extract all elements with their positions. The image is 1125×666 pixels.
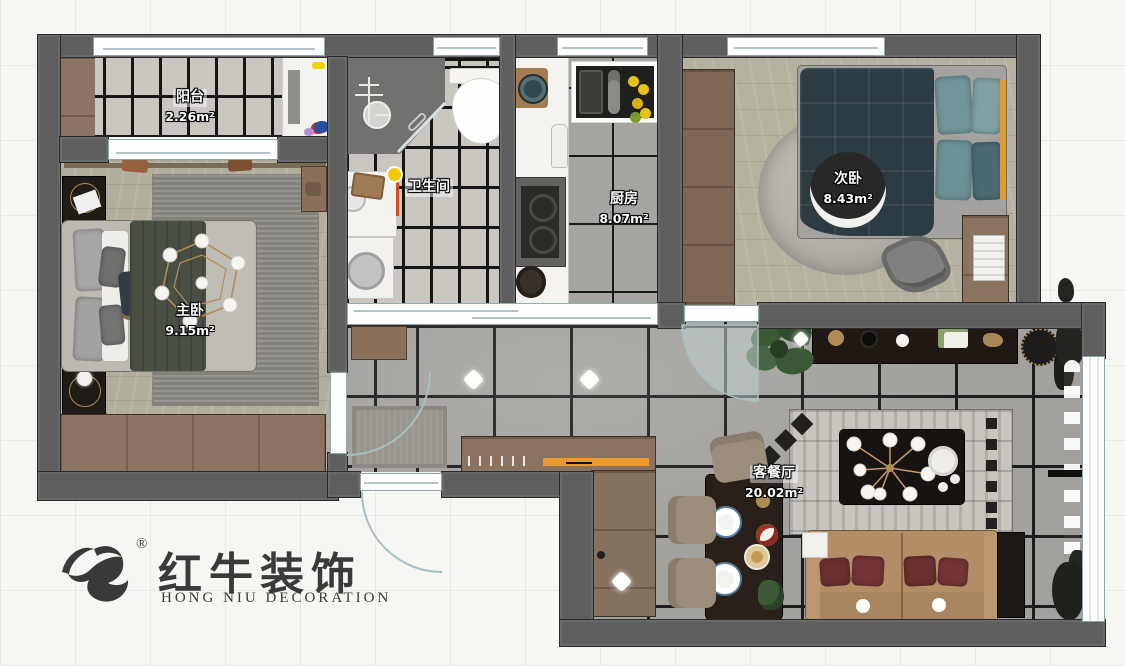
master-door-arc [345,370,435,460]
sofa-pillow [851,555,885,587]
balcony-shelf [283,57,330,137]
vegetables [628,76,639,87]
wall-bedroom2-right [1017,35,1040,305]
outdoor-figurine [1058,278,1074,302]
desk-chair [305,182,321,196]
bedroom2-door-leaf [684,305,759,322]
wall-bedroom2-bottom-right [758,303,1105,328]
brand-name-en: HONG NIU DECORATION [161,590,391,607]
table-tray [928,446,958,476]
hanging-clothes [228,158,253,172]
room-name: 卫生间 [405,179,453,197]
sofa-pillow [937,557,969,587]
wall-balcony-stub-right [278,137,330,162]
pillow [971,141,1003,200]
wall-left [38,35,60,500]
registered-mark: ® [136,536,147,553]
sofa-pillow [903,555,937,587]
hanging-clothes [121,158,148,173]
wall-living-bottom [560,620,1105,646]
orange-accent-strip [543,458,649,466]
desk-books [974,236,1004,280]
shower-icon [345,57,445,154]
window-balcony [93,37,325,56]
window-bedroom2 [727,37,885,56]
blue-shoe [314,121,329,133]
floor-plan-render: 阳台 2.26m² 卫生间 厨房 8.07m² 主卧 9.15m² 次卧 8.4… [0,0,1125,666]
window-balcony-bedroom [108,139,278,160]
clothes-rail [64,163,326,168]
logo-bull-icon [58,542,138,614]
wall-bath-kitchen [500,35,515,305]
balcony-side-cabinet [60,57,95,137]
window-kitchen [557,37,648,56]
room-label-second-bedroom: 次卧 8.43m² [806,168,890,206]
leaf-garland [1064,360,1080,565]
room-name: 客餐厅 [750,465,798,483]
nightstand [62,366,106,416]
shoe-cabinet-top [462,437,655,471]
dining-chair [668,558,716,608]
room-label-kitchen: 厨房 8.07m² [582,188,666,226]
nightstand [62,176,106,224]
pillow [971,77,1004,134]
headboard-led-strip [1000,80,1006,200]
room-label-bathroom: 卫生间 [394,176,464,197]
table-plant [758,580,784,610]
sputnik-chandelier-icon [846,434,934,502]
room-name: 次卧 [834,171,862,189]
fruit-plate [756,524,778,546]
cutting-board [551,124,568,168]
wall-master-bottom [38,472,338,500]
hall-bench [352,327,406,359]
wall-living-right-top [1082,303,1105,358]
wall-entry-left [328,472,360,497]
master-dresser [60,415,325,472]
sink-basin [579,70,603,114]
side-cabinet [998,533,1024,617]
wall-master-right-upper [328,57,347,372]
sliding-door-kitchen [347,303,658,325]
wall-kitchen-bedroom2 [658,35,682,328]
shelf-panel [288,70,300,124]
kitchen-sink-counter [572,62,658,122]
stove [515,178,565,266]
wall-balcony-stub-left [60,137,108,162]
window-living-right [1082,356,1105,622]
dining-chair [668,496,716,544]
fish-on-board [608,70,620,114]
wardrobe [682,70,734,307]
cooking-pot [518,74,548,104]
room-name: 厨房 [610,191,638,209]
room-name: 主卧 [176,303,204,321]
room-label-living-dining: 客餐厅 20.02m² [728,462,820,500]
brand-logo: ® 红牛装饰 HONG NIU DECORATION [58,538,418,622]
pillow [935,139,973,200]
tv-bar [1048,470,1082,477]
room-label-master-bedroom: 主卧 9.15m² [148,300,232,338]
decor-plant-dark [1052,562,1084,620]
cup [938,482,948,492]
window-bathroom [433,37,500,56]
sofa [806,531,998,621]
purple-item [304,128,314,136]
pillow [934,75,974,135]
room-label-balcony: 阳台 2.26m² [148,86,232,124]
shoe-cabinet-side [592,471,655,616]
sofa-pillow [819,557,851,587]
side-cube-table [803,533,827,557]
yellow-item [312,62,325,69]
pendant-lamp [744,544,770,570]
round-side-table [1021,328,1059,366]
tv-console [813,323,1017,363]
wok [516,266,546,298]
room-name: 阳台 [173,89,207,107]
